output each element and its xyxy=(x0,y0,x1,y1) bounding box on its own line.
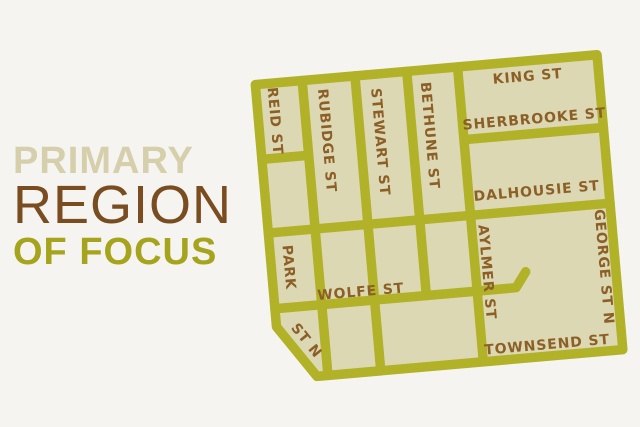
street-line-sherbrooke-west xyxy=(262,155,309,159)
map-rotated-group: KING ST SHERBROOKE ST DALHOUSIE ST WOLFE… xyxy=(255,54,626,379)
infographic-canvas: PRIMARY REGION OF FOCUS KING ST SHERBROO… xyxy=(0,0,640,427)
street-map: KING ST SHERBROOKE ST DALHOUSIE ST WOLFE… xyxy=(0,0,640,427)
